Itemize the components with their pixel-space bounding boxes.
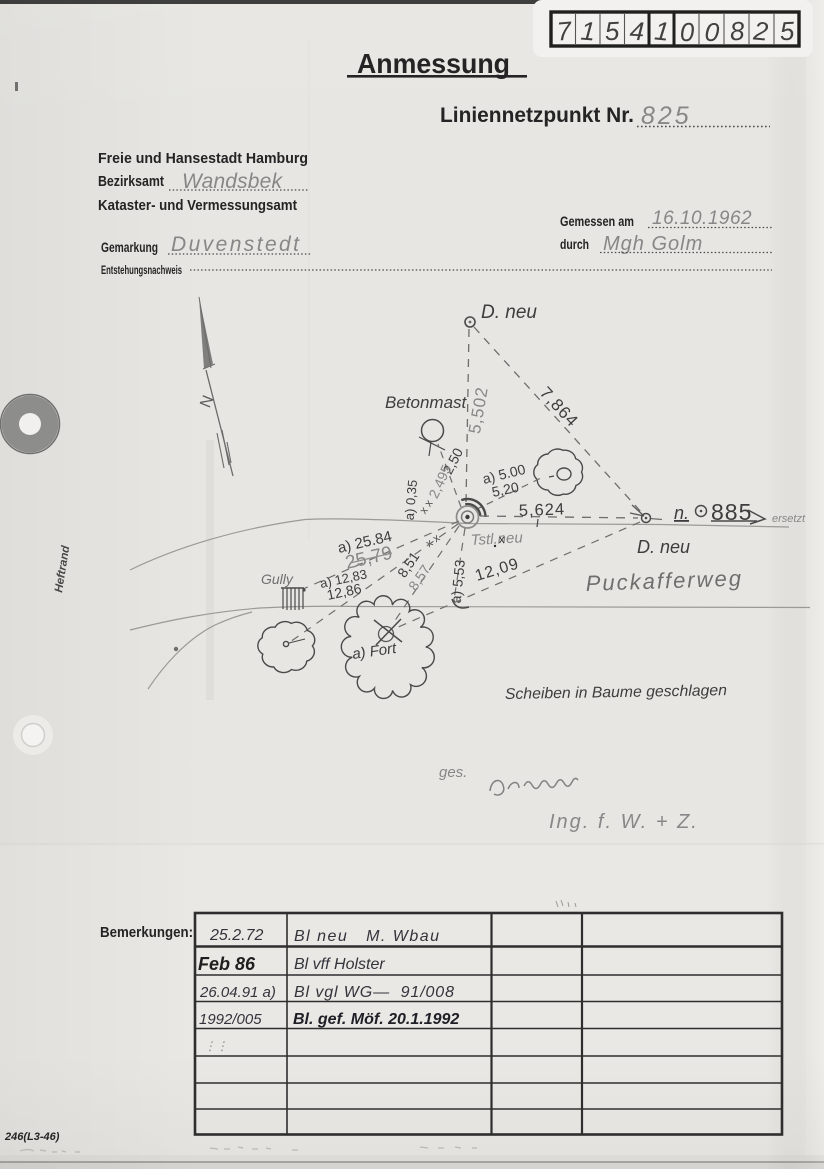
svg-text:Bezirksamt: Bezirksamt [98,174,164,190]
svg-text:D. neu: D. neu [481,302,537,323]
svg-text:1992/005: 1992/005 [199,1011,262,1028]
svg-text:Gemarkung: Gemarkung [101,239,158,255]
svg-text:5,624: 5,624 [519,500,566,520]
svg-text:1: 1 [580,16,597,47]
svg-text:16.10.1962: 16.10.1962 [652,208,752,229]
svg-text:8: 8 [729,15,746,46]
svg-text:25.2.72: 25.2.72 [209,927,263,944]
svg-text:0: 0 [679,17,695,48]
svg-text:durch: durch [560,236,589,252]
svg-text:Bl. gef. Möf. 20.1.1992: Bl. gef. Möf. 20.1.1992 [293,1011,459,1028]
svg-text:Freie und Hansestadt Hamburg: Freie und Hansestadt Hamburg [98,151,308,167]
svg-text:Kataster- und Vermessungsamt: Kataster- und Vermessungsamt [98,198,297,214]
svg-text:246(L3-46): 246(L3-46) [4,1131,60,1143]
svg-text:⋮⋮: ⋮⋮ [204,1039,228,1053]
svg-text:D. neu: D. neu [637,537,690,557]
svg-text:5: 5 [779,16,796,47]
svg-text:n.: n. [674,503,689,523]
svg-text:Betonmast: Betonmast [385,393,468,412]
svg-text:Gully: Gully [261,571,294,587]
svg-text:Feb 86: Feb 86 [198,954,256,974]
svg-text:Bl vgl WG— 91/008: Bl vgl WG— 91/008 [294,984,454,1001]
svg-text:Anmessung: Anmessung [357,48,510,79]
svg-text:5: 5 [604,16,621,47]
svg-text:x: x [499,534,505,546]
svg-text:ersetzt: ersetzt [772,513,806,525]
svg-text:ges.: ges. [439,764,467,781]
svg-text:26.04.91 a): 26.04.91 a) [199,984,276,1001]
svg-text:2: 2 [751,15,770,46]
svg-text:0: 0 [704,17,721,48]
svg-text:Duvenstedt: Duvenstedt [171,233,300,256]
svg-text:4: 4 [629,16,645,47]
svg-text:Gemessen am: Gemessen am [560,213,634,229]
svg-text:Ing. f. W. + Z.: Ing. f. W. + Z. [549,811,699,833]
svg-text:Bl vff Holster: Bl vff Holster [294,956,385,973]
svg-text:Bemerkungen:: Bemerkungen: [100,925,193,941]
svg-text:Tstl.neu: Tstl.neu [470,529,523,549]
svg-text:Mgh Golm: Mgh Golm [603,233,703,255]
svg-text:Entstehungsnachweis: Entstehungsnachweis [101,265,182,277]
svg-text:Liniennetzpunkt Nr.: Liniennetzpunkt Nr. [440,104,634,127]
